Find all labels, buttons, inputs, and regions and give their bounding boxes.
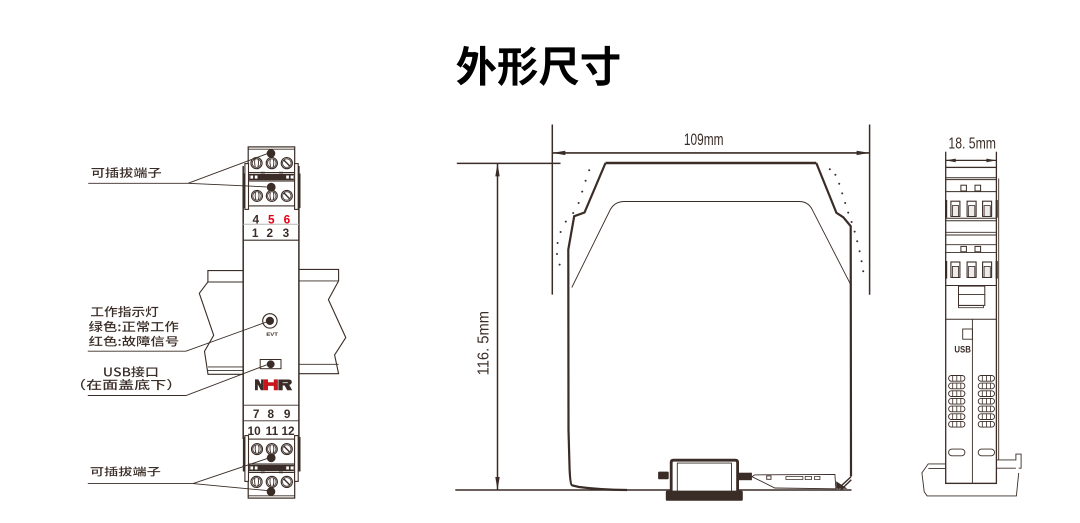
svg-text:11: 11 [266,424,279,438]
svg-text:109mm: 109mm [684,130,724,149]
svg-text:116. 5mm: 116. 5mm [476,311,493,375]
svg-text:18. 5mm: 18. 5mm [948,136,996,153]
svg-text:USB: USB [954,344,971,355]
svg-text:1: 1 [252,226,259,240]
svg-text:8: 8 [268,407,275,421]
svg-text:12: 12 [281,424,295,438]
svg-text:2: 2 [267,226,274,240]
svg-text:9: 9 [284,407,291,421]
svg-text:3: 3 [283,226,290,240]
svg-text:10: 10 [248,424,262,438]
svg-text:7: 7 [253,407,260,421]
